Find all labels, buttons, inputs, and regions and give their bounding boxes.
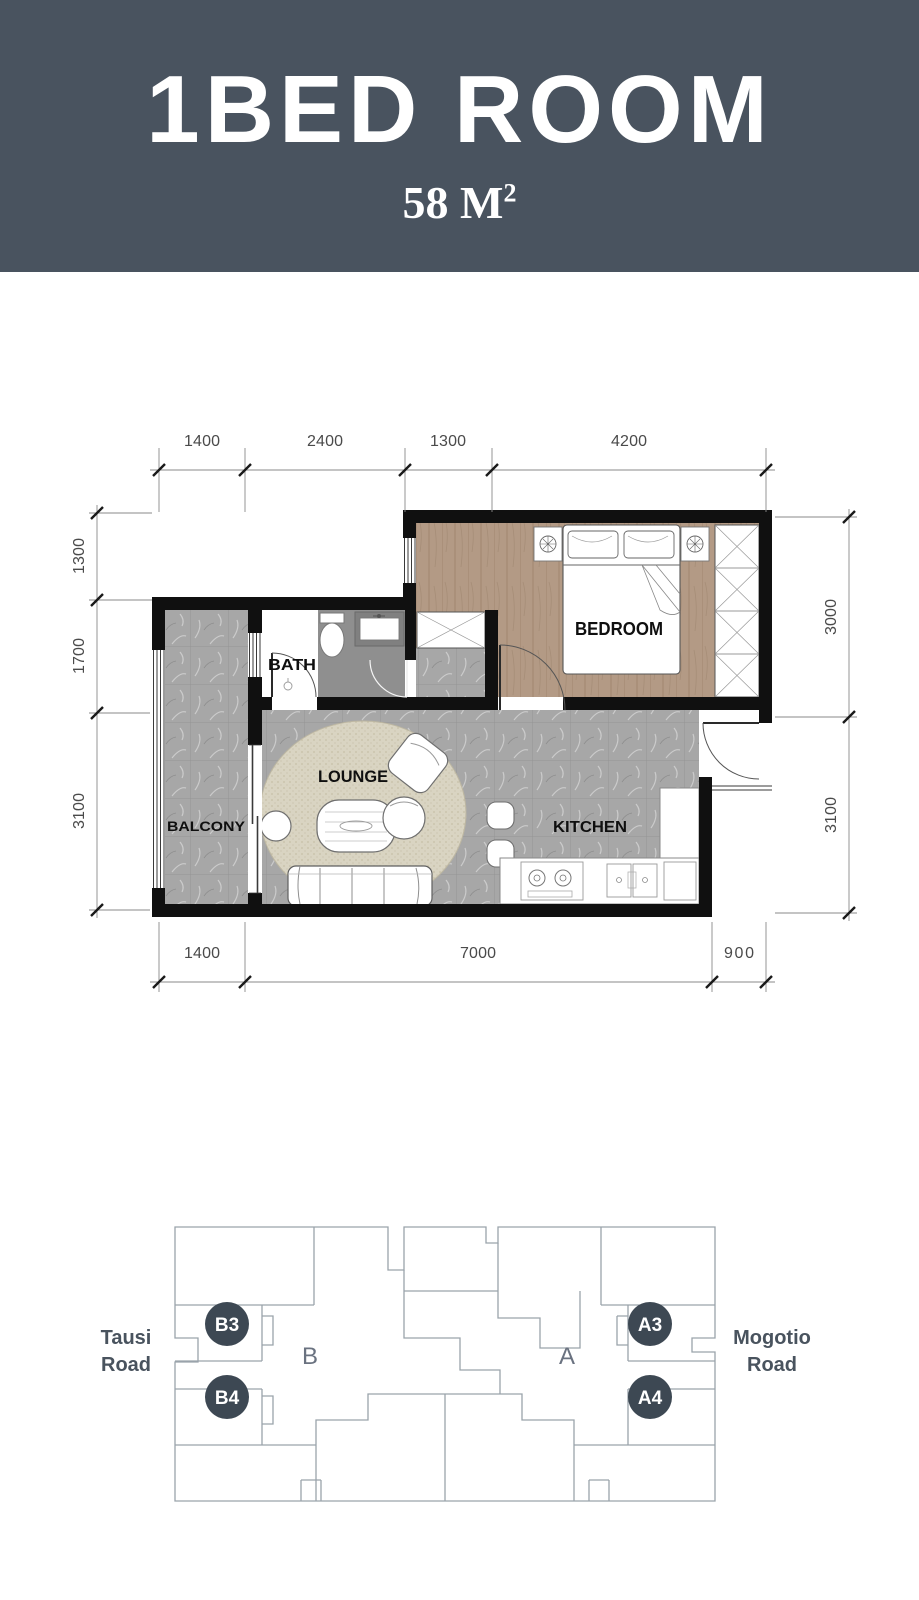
area-value: 58 M: [403, 177, 504, 228]
block-label-b: B: [302, 1343, 318, 1370]
road-label-mogotio-line2: Road: [747, 1354, 797, 1376]
round-chair: [383, 797, 425, 839]
building-outline: [175, 1227, 715, 1501]
road-label-tausi-line1: Tausi: [101, 1327, 152, 1349]
bar-stool: [487, 802, 514, 829]
dim-left-3: 3100: [71, 793, 88, 829]
road-label-tausi-line2: Road: [101, 1354, 151, 1376]
area-label: 58 M2: [403, 176, 517, 229]
balcony-floor: [165, 610, 248, 904]
hall-closet: [417, 612, 485, 648]
entry-door: [703, 723, 759, 779]
dim-right-2: 3100: [823, 797, 840, 833]
bath-sink: [355, 612, 404, 646]
side-table: [261, 811, 291, 841]
wardrobe: [715, 525, 759, 697]
bath-balcony-window: [248, 633, 262, 677]
bedroom-window: [403, 538, 416, 583]
balcony-sliding-door: [249, 745, 261, 893]
lamp-icon: [540, 536, 556, 552]
floorplan-canvas: BEDROOM BATH LOUNGE BALCONY KITCHEN: [0, 272, 919, 1600]
sofa: [288, 866, 432, 906]
bed: [563, 525, 680, 674]
dim-bottom-3: 900: [724, 945, 754, 962]
dim-bottom-1: 1400: [184, 945, 220, 962]
page-title: 1BED ROOM: [146, 62, 772, 158]
stove: [521, 862, 583, 900]
room-label-balcony: BALCONY: [167, 818, 246, 834]
coffee-table: [317, 800, 395, 852]
dim-top-3: 1300: [430, 433, 466, 450]
kitchen-counter-right: [660, 788, 699, 858]
dim-top-2: 2400: [307, 433, 343, 450]
room-label-kitchen: KITCHEN: [553, 819, 627, 836]
room-label-lounge: LOUNGE: [318, 767, 388, 786]
fridge: [664, 862, 696, 900]
area-superscript: 2: [503, 178, 516, 207]
floorplan-page: 1BED ROOM 58 M2: [0, 0, 919, 1600]
block-label-a: A: [559, 1343, 575, 1370]
site-plan: B3 B4 A3 A4 B A Tausi Road Mogotio Road: [101, 1227, 811, 1501]
toilet: [320, 613, 344, 657]
dim-left-1: 1300: [71, 538, 88, 574]
balcony-window: [152, 650, 165, 888]
unit-badge-a4-label: A4: [638, 1388, 663, 1409]
dim-left-2: 1700: [71, 638, 88, 674]
unit-badges: B3 B4 A3 A4: [205, 1302, 672, 1419]
header-banner: 1BED ROOM 58 M2: [0, 0, 919, 272]
room-label-bedroom: BEDROOM: [575, 619, 663, 639]
dim-top-4: 4200: [611, 433, 647, 450]
hall-nook-floor: [416, 648, 485, 697]
road-label-mogotio-line1: Mogotio: [733, 1327, 811, 1349]
unit-badge-a3-label: A3: [638, 1315, 662, 1336]
room-label-bath: BATH: [268, 657, 316, 674]
dim-top-1: 1400: [184, 433, 220, 450]
unit-badge-b4-label: B4: [215, 1388, 240, 1409]
lamp-icon: [687, 536, 703, 552]
unit-badge-b3-label: B3: [215, 1315, 239, 1336]
dim-bottom-2: 7000: [460, 945, 496, 962]
dim-right-1: 3000: [823, 599, 840, 635]
entry-side-window: [712, 786, 772, 790]
